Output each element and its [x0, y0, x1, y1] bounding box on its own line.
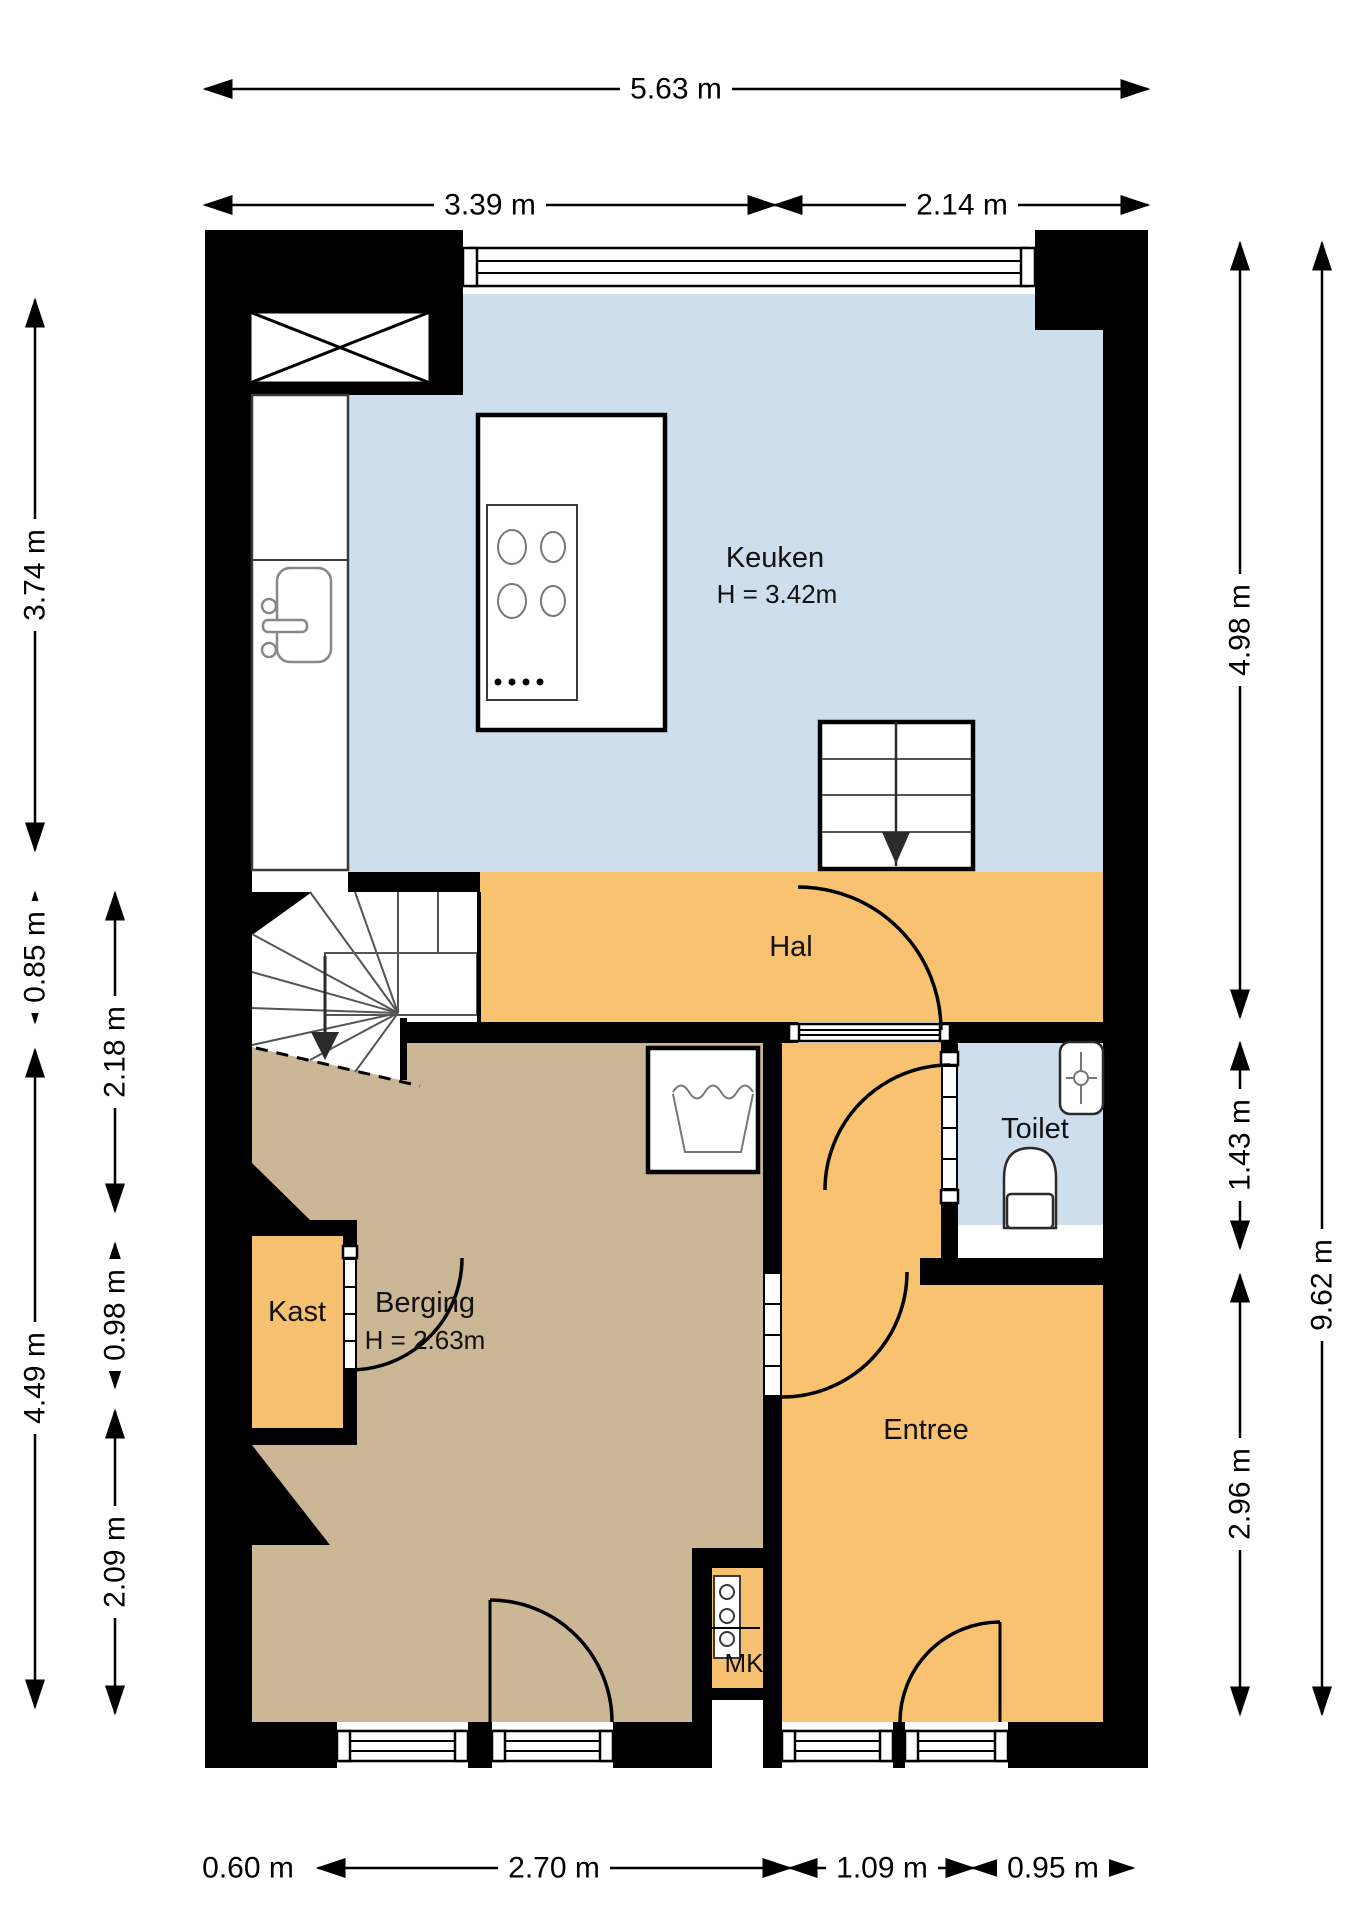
- wall-bottom-left-pier: [205, 1722, 337, 1768]
- svg-text:5.63 m: 5.63 m: [630, 73, 722, 106]
- svg-text:9.62 m: 9.62 m: [1306, 1239, 1339, 1331]
- room-label-toilet: Toilet: [1001, 1113, 1069, 1145]
- wall-toilet-bottom: [920, 1258, 1103, 1285]
- wall-bottom-mullion-entree: [893, 1722, 905, 1768]
- wall-mk-bottom: [712, 1688, 763, 1700]
- room-height-berging: H = 2.63m: [365, 1325, 486, 1355]
- washing-machine-icon: [648, 1048, 758, 1172]
- toilet-bowl-icon: [1004, 1148, 1056, 1228]
- wall-mk-left: [692, 1568, 712, 1722]
- window-berging-bottom: [337, 1722, 468, 1768]
- svg-text:0.95 m: 0.95 m: [1007, 1852, 1099, 1885]
- dimension-left-374: 3.74 m: [17, 300, 53, 850]
- dimension-left-098: 0.98 m: [97, 1244, 133, 1387]
- wall-berging-entree: [763, 1043, 782, 1272]
- dimension-right-296: 2.96 m: [1222, 1275, 1258, 1714]
- svg-text:2.96 m: 2.96 m: [1224, 1448, 1257, 1540]
- svg-text:4.49 m: 4.49 m: [19, 1332, 52, 1424]
- kitchen-island: [478, 415, 665, 730]
- svg-text:4.98 m: 4.98 m: [1224, 584, 1257, 676]
- svg-text:3.39 m: 3.39 m: [444, 189, 536, 222]
- svg-text:1.43 m: 1.43 m: [1224, 1099, 1257, 1191]
- wall-berging-entree-lower: [763, 1397, 782, 1768]
- svg-text:0.98 m: 0.98 m: [99, 1269, 132, 1361]
- dimension-left-218: 2.18 m: [97, 893, 133, 1211]
- room-label-kast: Kast: [268, 1296, 326, 1328]
- dimension-left-085: 0.85 m: [17, 893, 53, 1022]
- dimension-left-209: 2.09 m: [97, 1411, 133, 1713]
- wall-bottom-mid-pier: [613, 1722, 712, 1768]
- room-label-berging: Berging: [375, 1287, 475, 1319]
- dimension-right-143: 1.43 m: [1222, 1043, 1258, 1248]
- svg-text:3.74 m: 3.74 m: [19, 529, 52, 621]
- dimension-bottom-270: 2.70 m: [318, 1850, 790, 1886]
- dimension-left-449: 4.49 m: [17, 1050, 53, 1707]
- dimension-right-498: 4.98 m: [1222, 243, 1258, 1017]
- svg-text:2.14 m: 2.14 m: [916, 189, 1008, 222]
- svg-text:2.09 m: 2.09 m: [99, 1516, 132, 1608]
- room-label-keuken: Keuken: [726, 542, 824, 574]
- window-top: [463, 230, 1035, 294]
- toilet-sink-icon: [1060, 1042, 1103, 1114]
- wall-kast-right-lower: [343, 1370, 357, 1428]
- dimension-bottom-109: 1.09 m: [790, 1850, 973, 1886]
- svg-text:2.18 m: 2.18 m: [99, 1006, 132, 1098]
- room-label-mk: MK: [725, 1648, 765, 1678]
- room-height-keuken: H = 3.42m: [717, 579, 838, 609]
- room-label-hal: Hal: [769, 931, 813, 963]
- svg-text:0.85 m: 0.85 m: [19, 911, 52, 1003]
- wall-left: [205, 230, 252, 1768]
- wall-kast-top: [252, 1220, 357, 1236]
- shaft-symbol: [250, 312, 430, 383]
- wall-mk-top: [692, 1548, 782, 1568]
- mk-recess: [712, 1700, 763, 1768]
- kitchen-counter: [252, 395, 348, 870]
- wall-bottom-right-pier: [1008, 1722, 1148, 1768]
- wall-stair-side: [477, 892, 481, 1022]
- dimension-top-right: 2.14 m: [775, 187, 1148, 223]
- wall-right: [1103, 230, 1148, 1768]
- wall-kast-bottom: [205, 1428, 357, 1445]
- kitchen-staircase: [820, 722, 973, 869]
- floor-plan-svg: Keuken H = 3.42m Hal Toilet Berging H = …: [0, 0, 1358, 1920]
- kast-floor: [252, 1236, 343, 1428]
- room-label-entree: Entree: [883, 1414, 968, 1446]
- wall-keuken-berging: [348, 872, 480, 892]
- dimension-right-total: 9.62 m: [1304, 243, 1340, 1714]
- toilet-floor-uncolored: [958, 1225, 1103, 1262]
- dimension-bottom-095: 0.95 m: [973, 1850, 1133, 1886]
- window-entree-bottom: [782, 1722, 893, 1768]
- svg-text:1.09 m: 1.09 m: [836, 1852, 928, 1885]
- floorplan-page: Keuken H = 3.42m Hal Toilet Berging H = …: [0, 0, 1358, 1920]
- dimension-top-total: 5.63 m: [205, 71, 1148, 107]
- svg-text:2.70 m: 2.70 m: [508, 1852, 600, 1885]
- dimension-bottom-060: 0.60 m: [202, 1852, 294, 1885]
- dimension-top-left: 3.39 m: [205, 187, 775, 223]
- wall-bottom-mullion-berging: [468, 1722, 492, 1768]
- wall-hal-south-left: [400, 1022, 798, 1043]
- stove-icon: [487, 505, 577, 700]
- wall-hal-south-right: [941, 1022, 1103, 1043]
- svg-text:0.60 m: 0.60 m: [202, 1852, 294, 1885]
